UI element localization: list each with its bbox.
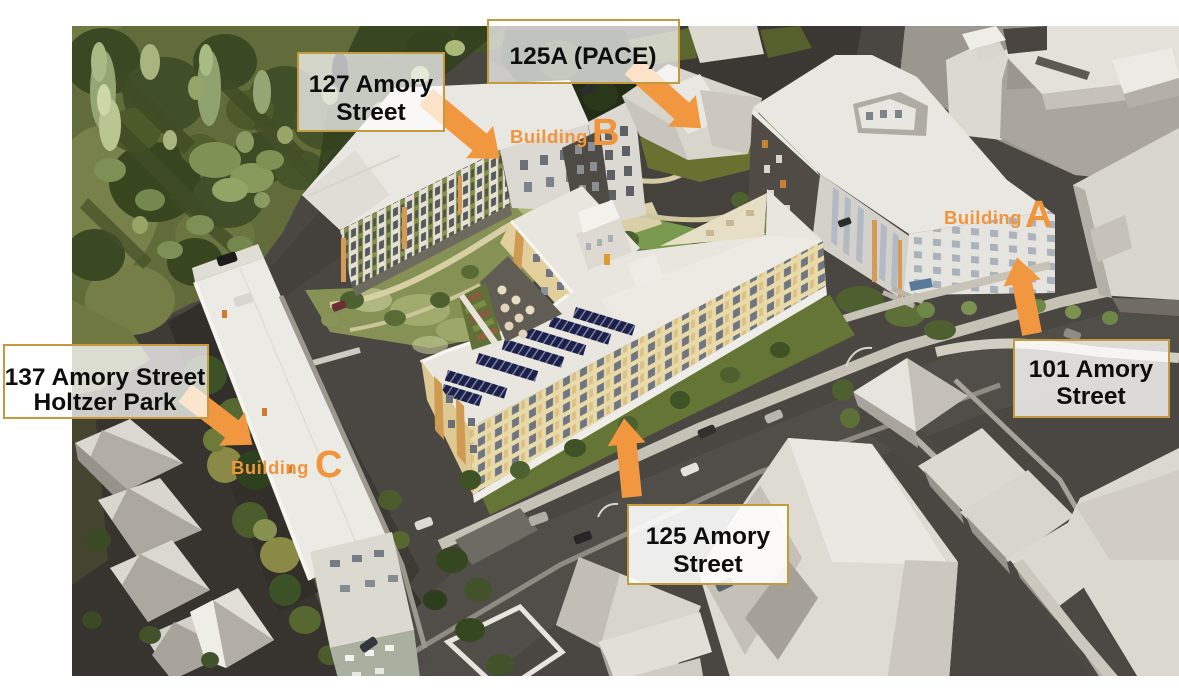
svg-text:Building: Building [231,457,309,478]
svg-text:Holtzer Park: Holtzer Park [34,389,177,416]
svg-text:Building: Building [510,126,588,147]
svg-text:125A (PACE): 125A (PACE) [509,43,656,70]
svg-text:137 Amory Street: 137 Amory Street [5,364,206,391]
svg-text:Building: Building [944,207,1022,228]
svg-text:101 Amory: 101 Amory [1029,356,1154,383]
svg-text:Street: Street [336,99,405,126]
svg-text:Street: Street [1056,383,1125,410]
svg-text:Street: Street [673,551,742,578]
svg-text:127 Amory: 127 Amory [309,71,434,98]
svg-text:125 Amory: 125 Amory [646,523,771,550]
svg-text:A: A [1025,194,1052,236]
svg-text:B: B [592,112,619,154]
svg-text:C: C [315,444,342,486]
